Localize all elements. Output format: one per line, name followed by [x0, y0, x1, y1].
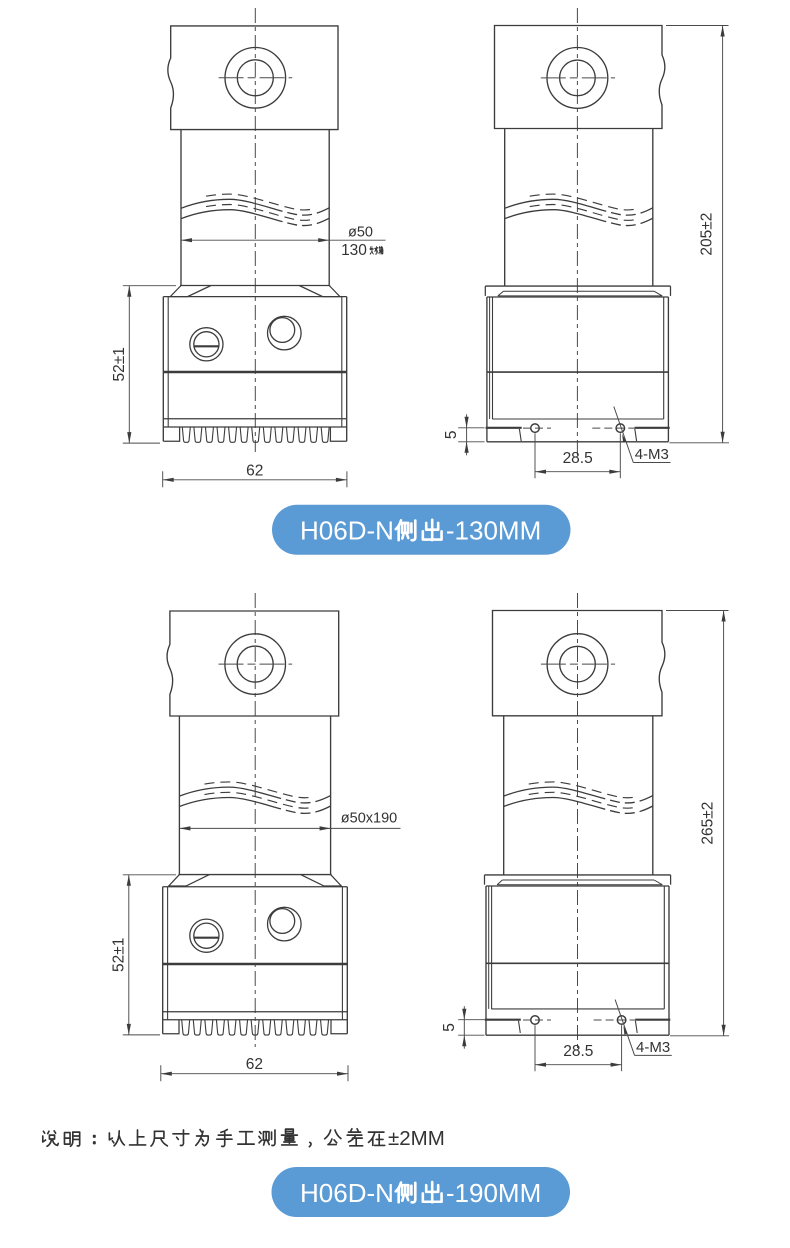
svg-text:4-M3: 4-M3: [635, 446, 669, 463]
svg-text:62: 62: [246, 462, 263, 479]
svg-text:ø50x190: ø50x190: [341, 811, 397, 827]
svg-text:5: 5: [443, 430, 460, 439]
svg-text:52±1: 52±1: [110, 938, 127, 972]
svg-text:ø50: ø50: [348, 225, 373, 241]
svg-text:52±1: 52±1: [111, 347, 128, 381]
svg-text:5: 5: [441, 1023, 458, 1032]
svg-text:62: 62: [246, 1056, 263, 1073]
svg-text:4-M3: 4-M3: [636, 1039, 670, 1056]
svg-text:H06D-N: H06D-N: [300, 1178, 394, 1208]
svg-text:H06D-N: H06D-N: [300, 516, 394, 546]
svg-text:±2MM: ±2MM: [388, 1127, 445, 1150]
svg-text:28.5: 28.5: [563, 1043, 593, 1060]
svg-text:205±2: 205±2: [699, 213, 716, 256]
svg-text:-190MM: -190MM: [446, 1178, 541, 1208]
svg-text:130: 130: [341, 242, 367, 259]
svg-text:28.5: 28.5: [563, 450, 593, 467]
svg-text:-130MM: -130MM: [446, 516, 541, 546]
svg-text:265±2: 265±2: [700, 802, 717, 845]
